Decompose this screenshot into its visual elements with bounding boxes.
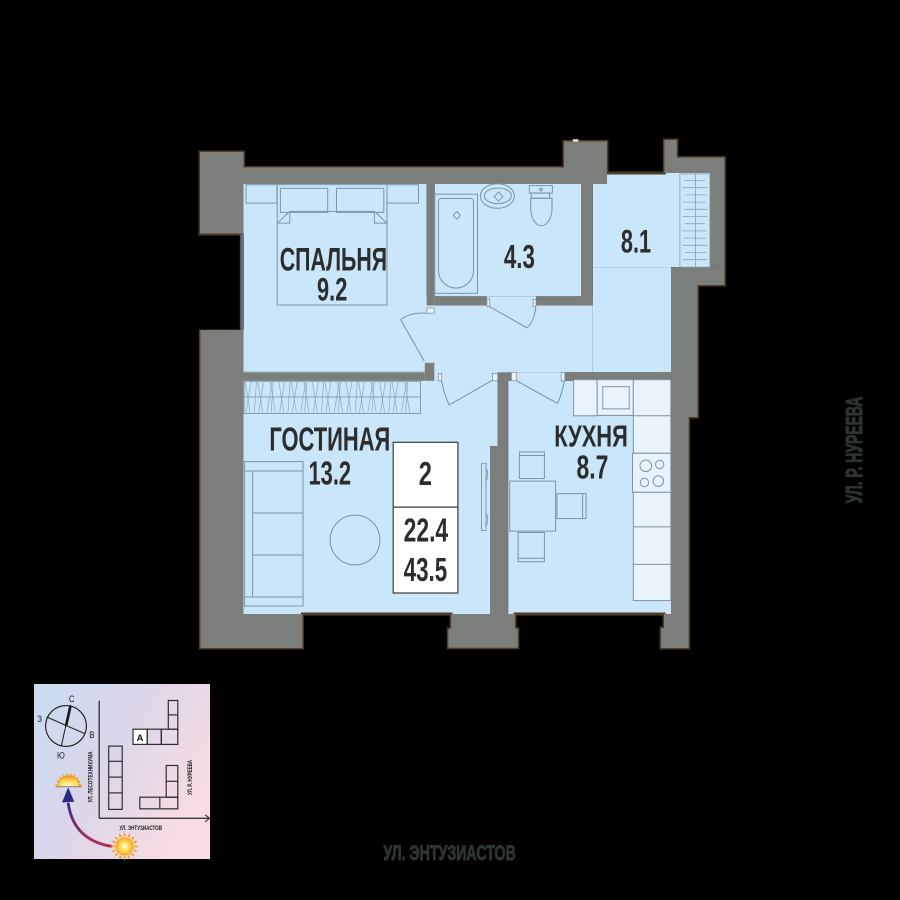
svg-text:Ю: Ю: [57, 750, 65, 761]
svg-text:13.2: 13.2: [308, 454, 351, 491]
svg-text:УЛ. ЭНТУЗИАСТОВ: УЛ. ЭНТУЗИАСТОВ: [383, 842, 516, 865]
svg-text:С: С: [69, 693, 75, 704]
svg-text:УЛ. Р. НУРЕЕВА: УЛ. Р. НУРЕЕВА: [187, 760, 194, 795]
svg-text:УЛ. ЛЕСОТЕХНИКУМА: УЛ. ЛЕСОТЕХНИКУМА: [88, 751, 95, 802]
svg-text:8.7: 8.7: [576, 448, 608, 485]
svg-text:УЛ. ЭНТУЗИАСТОВ: УЛ. ЭНТУЗИАСТОВ: [120, 825, 163, 832]
svg-text:8.1: 8.1: [621, 224, 651, 260]
svg-text:В: В: [89, 729, 94, 740]
svg-text:З: З: [37, 713, 42, 724]
svg-text:2: 2: [419, 455, 432, 492]
svg-text:43.5: 43.5: [404, 551, 448, 588]
svg-text:9.2: 9.2: [317, 272, 347, 308]
svg-text:22.4: 22.4: [404, 512, 449, 549]
svg-text:А: А: [137, 733, 144, 744]
svg-text:4.3: 4.3: [504, 238, 535, 275]
svg-text:УЛ. Р. НУРЕЕВА: УЛ. Р. НУРЕЕВА: [841, 397, 867, 504]
svg-text:ГОСТИНАЯ: ГОСТИНАЯ: [269, 421, 390, 458]
